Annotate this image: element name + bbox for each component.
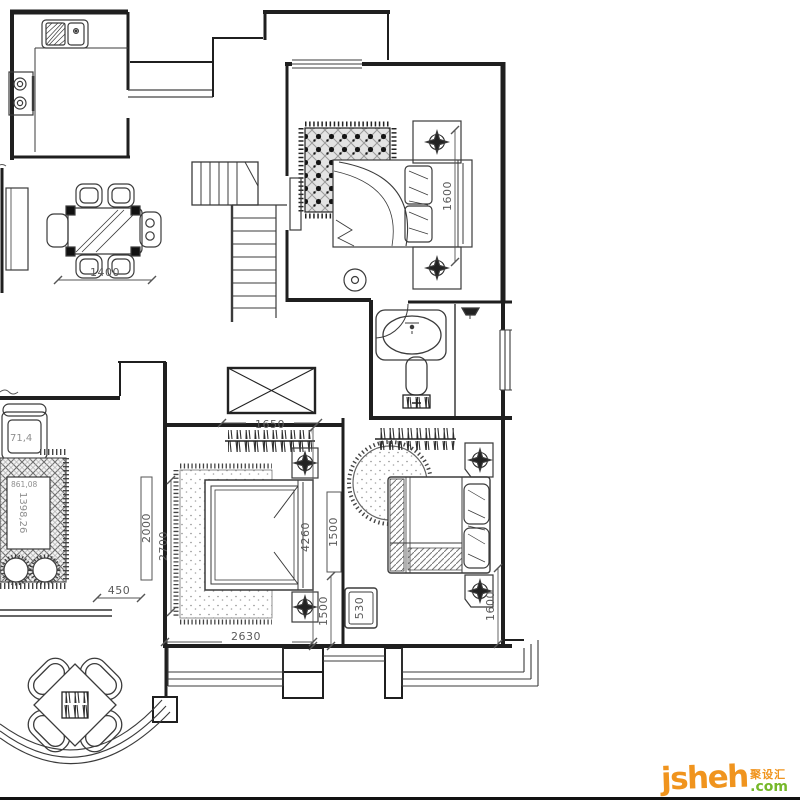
bathroom	[376, 304, 479, 408]
dim-dining-width: 1400	[90, 266, 120, 279]
bathtub	[376, 310, 446, 360]
ceiling-light	[344, 269, 366, 291]
dim-bedroom2-height: 4260	[299, 522, 312, 552]
dim-closet-upper: 1500	[327, 517, 340, 547]
watermark: jsheh 聚设汇 .com	[661, 763, 788, 794]
dim-desk-offset: 450	[108, 584, 131, 597]
shaft-box	[228, 368, 315, 413]
shower-head-icon	[462, 308, 479, 319]
label-table-area-v: 1398,26	[17, 492, 28, 533]
sideboard	[6, 188, 28, 270]
floorplan-drawing: 1400 1600 1650 2000 2700 450 4260 1500 1…	[0, 0, 800, 800]
watermark-brand: jsheh	[661, 761, 749, 795]
dim-bedroom2-left: 2700	[157, 531, 170, 561]
balcony-tea-set	[23, 653, 127, 757]
bed-2	[205, 480, 313, 590]
pouf	[33, 558, 57, 582]
wall-lines-mid	[323, 656, 385, 661]
living-room	[0, 404, 66, 586]
dining-area	[6, 184, 161, 278]
dim-bedroom1-depth: 1600	[441, 181, 454, 211]
kitchen	[9, 20, 128, 152]
dim-bedroom3-side: 1600	[484, 591, 497, 621]
dim-living-edge: 2000	[140, 513, 153, 543]
dim-bedroom2-width: 2630	[231, 630, 261, 643]
dim-shaft: 1650	[255, 418, 285, 431]
bay-window-left-mid	[168, 648, 283, 686]
lamp-icon	[469, 449, 491, 471]
floorplan-canvas: 1400 1600 1650 2000 2700 450 4260 1500 1…	[0, 0, 800, 800]
stairs	[192, 162, 287, 322]
bedroom-middle	[176, 430, 318, 622]
bedroom-right	[345, 428, 493, 628]
toilet	[403, 357, 430, 408]
table-ornament	[62, 692, 88, 718]
lamp-icon	[426, 131, 448, 153]
label-armchair-area: 71,4	[10, 433, 32, 444]
dim-bedside-stand: 530	[353, 597, 366, 620]
window-bath	[500, 330, 512, 390]
watermark-suffix: .com	[750, 780, 788, 794]
lamp-icon	[426, 257, 448, 279]
window-bedroom-top	[292, 60, 362, 68]
dining-chairs	[47, 184, 161, 278]
label-table-area-h: 861,08	[11, 480, 37, 489]
dim-closet-lower: 1500	[317, 596, 330, 626]
dining-table	[66, 206, 142, 256]
bed-3	[388, 477, 490, 573]
kitchen-sink	[42, 20, 88, 48]
pouf	[4, 558, 28, 582]
